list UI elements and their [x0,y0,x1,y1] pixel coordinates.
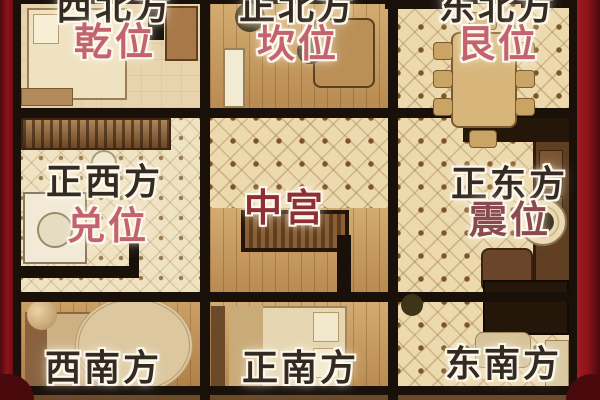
pillow [313,312,339,342]
label-west-direction: 正西方 [46,164,163,201]
floor-lamp [27,300,57,330]
wall-right [569,0,577,400]
dining-chair [515,70,535,88]
dining-chair [469,130,497,148]
label-center-palace: 中宫 [244,190,326,229]
dining-chair [433,70,453,88]
label-south-direction: 正南方 [242,350,359,387]
label-west-trigram: 兑位 [67,208,149,247]
wall-left [13,0,21,400]
bookshelf [21,118,171,150]
tv-wall [483,280,569,335]
grid-line-vertical-2 [388,0,398,400]
dining-chair [515,98,535,116]
floor-edge [13,395,577,400]
left-red-border [0,0,13,400]
label-northeast-trigram: 艮位 [457,26,539,65]
dining-chair [433,98,453,116]
label-north-direction: 正北方 [239,0,356,26]
grid-line-horizontal-2 [13,292,577,302]
fengshui-nine-palace-floorplan: 西北方 乾位 正北方 坎位 东北方 艮位 正西方 兑位 中宫 正东方 震位 西南… [0,0,600,400]
grid-line-vertical-1 [200,0,210,400]
door [223,48,245,108]
wall-segment [21,266,139,278]
plant [401,294,423,316]
label-east-trigram: 震位 [469,202,551,241]
label-northwest-trigram: 乾位 [74,24,156,63]
right-red-border [577,0,600,400]
label-southeast-direction: 东南方 [445,346,562,383]
label-east-direction: 正东方 [451,166,568,203]
label-north-trigram: 坎位 [257,26,339,65]
wall-segment [337,235,351,292]
dining-chair [433,42,453,60]
wardrobe [211,306,225,388]
dresser [21,88,73,106]
label-northeast-direction: 东北方 [439,0,556,26]
label-southwest-direction: 西南方 [45,350,162,387]
